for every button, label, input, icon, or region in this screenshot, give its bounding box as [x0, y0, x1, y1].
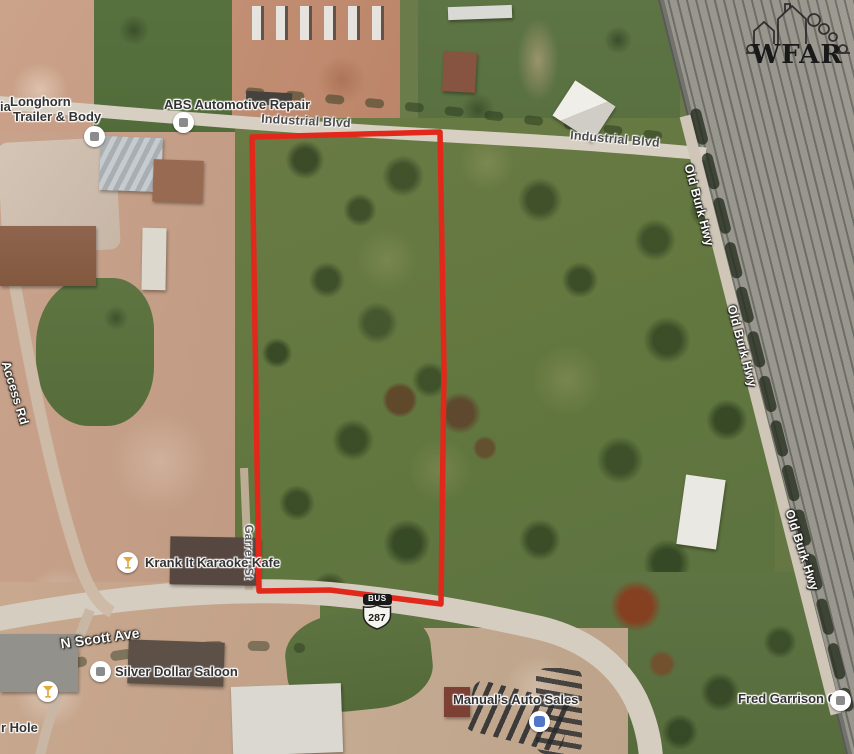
business-icon — [179, 118, 188, 127]
poi-marker-krank-it[interactable] — [117, 552, 138, 573]
business-icon — [96, 667, 105, 676]
poi-marker-manuals-auto[interactable] — [529, 711, 550, 732]
highway-shield-287: 287 — [362, 604, 392, 630]
watermark-text: WFAR — [750, 40, 843, 70]
poi-label-silver-dollar: Silver Dollar Saloon — [115, 664, 238, 679]
auto-dealer-icon — [534, 716, 545, 727]
wfar-watermark-logo: WFAR — [744, 0, 854, 70]
poi-label-abs-automotive: ABS Automotive Repair — [164, 97, 310, 112]
poi-label-longhorn: Longhorn Trailer & Body — [10, 94, 101, 124]
cocktail-icon — [42, 685, 54, 698]
poi-marker-abs-automotive[interactable] — [173, 112, 194, 133]
poi-marker-fred-garrison[interactable] — [830, 690, 851, 711]
poi-label-krank-it: Krank It Karaoke Kafe — [145, 555, 280, 570]
business-icon — [836, 696, 845, 705]
poi-label-hole-fragment: r Hole — [1, 720, 38, 735]
satellite-map: Industrial Blvd Industrial Blvd Old Burk… — [0, 0, 854, 754]
poi-label-fred-garrison: Fred Garrison Oil — [738, 691, 845, 706]
business-icon — [90, 132, 99, 141]
poi-marker-silver-dollar[interactable] — [90, 661, 111, 682]
parcel-boundary — [252, 132, 444, 604]
svg-text:287: 287 — [368, 612, 386, 624]
poi-marker-bar-south[interactable] — [37, 681, 58, 702]
poi-marker-longhorn[interactable] — [84, 126, 105, 147]
poi-label-manuals-auto: Manual's Auto Sales — [453, 692, 578, 707]
cocktail-icon — [122, 556, 134, 569]
